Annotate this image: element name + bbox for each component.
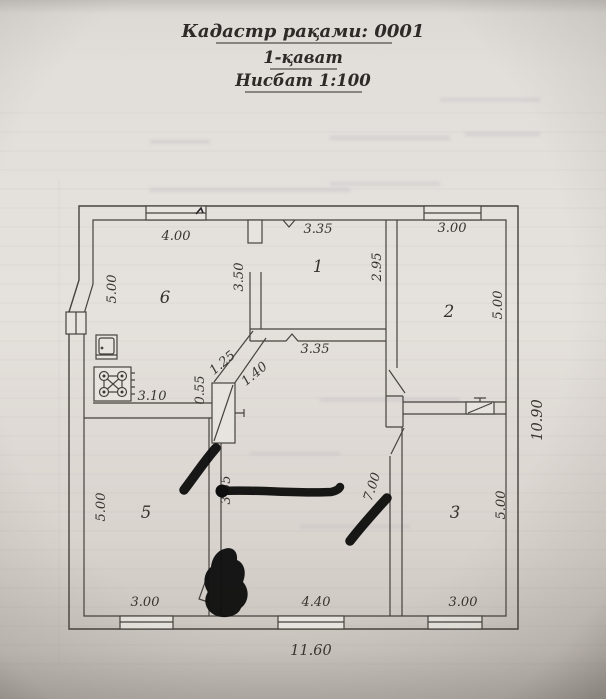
floor-plan-drawing: Кадастр рақами: 0001 1-қават Нисбат 1:10… [0,0,606,699]
cadastral-plan-photo: Кадастр рақами: 0001 1-қават Нисбат 1:10… [0,0,606,699]
photo-vignette [0,0,606,699]
